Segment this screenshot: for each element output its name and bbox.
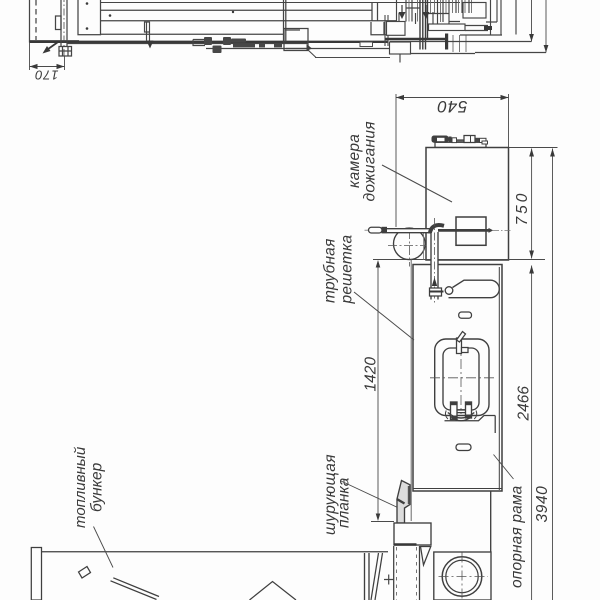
svg-text:камера: камера bbox=[346, 134, 363, 188]
svg-text:решетка: решетка bbox=[339, 235, 356, 305]
svg-text:540: 540 bbox=[437, 97, 468, 116]
svg-text:топливный: топливный bbox=[72, 446, 89, 528]
svg-text:опорная рама: опорная рама bbox=[509, 485, 526, 588]
svg-text:1420: 1420 bbox=[363, 357, 380, 392]
svg-text:бункер: бункер bbox=[89, 462, 106, 512]
svg-text:3940: 3940 bbox=[534, 486, 551, 523]
svg-text:2466: 2466 bbox=[516, 386, 533, 422]
svg-text:170: 170 bbox=[34, 67, 58, 82]
svg-text:трубная: трубная bbox=[322, 239, 339, 303]
svg-text:750: 750 bbox=[514, 191, 531, 226]
svg-text:дожигания: дожигания bbox=[362, 121, 379, 201]
